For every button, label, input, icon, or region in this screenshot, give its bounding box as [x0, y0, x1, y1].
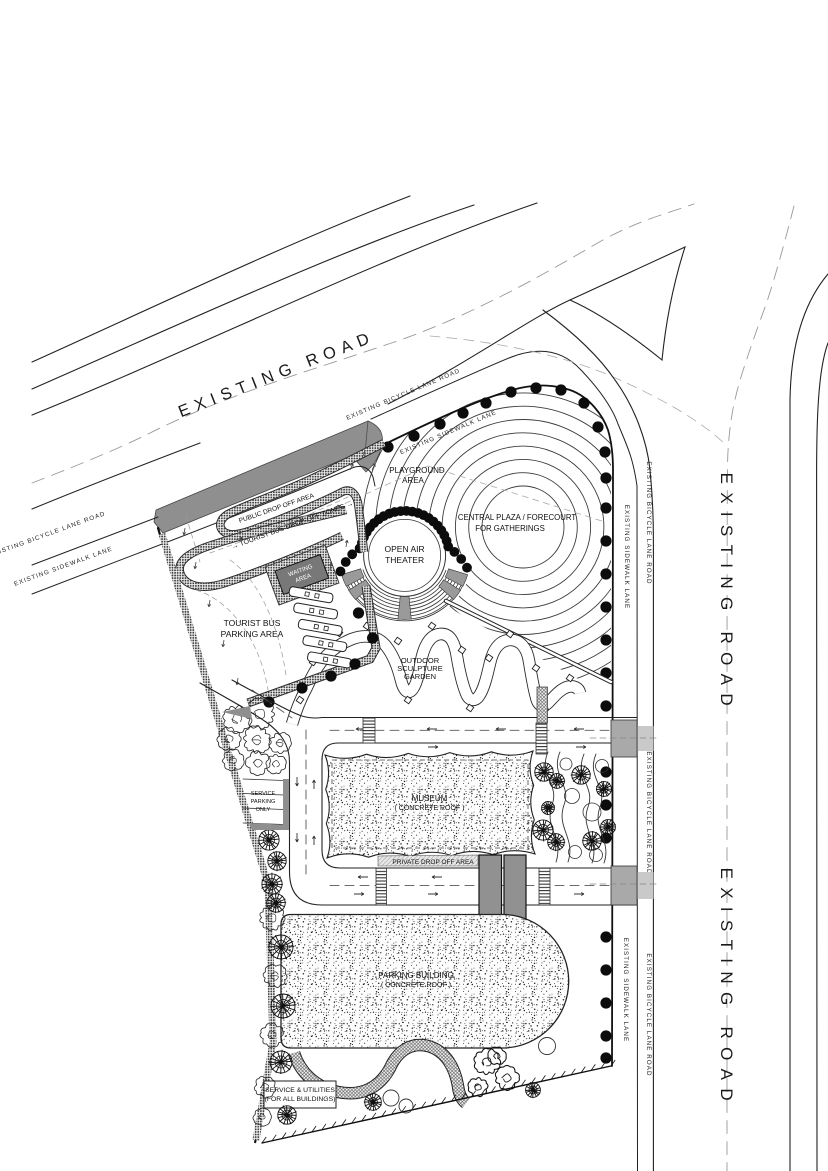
- svg-text:PRIVATE DROP OFF AREA: PRIVATE DROP OFF AREA: [392, 859, 474, 866]
- svg-text:PARKING: PARKING: [251, 799, 276, 805]
- svg-text:EXISTING BICYCLE LANE ROAD: EXISTING BICYCLE LANE ROAD: [645, 751, 652, 874]
- svg-text:AREA: AREA: [402, 476, 424, 485]
- svg-text:( CONCRETE ROOF ): ( CONCRETE ROOF ): [395, 805, 465, 812]
- svg-text:ONLY: ONLY: [256, 807, 271, 813]
- svg-text:PARKING AREA: PARKING AREA: [221, 629, 284, 639]
- svg-text:GARDEN: GARDEN: [404, 672, 436, 681]
- svg-text:E X I S T I N G R O A D: E X I S T I N G R O A D: [717, 473, 736, 708]
- svg-text:FOR GATHERINGS: FOR GATHERINGS: [475, 524, 545, 533]
- svg-text:TOURIST BUS: TOURIST BUS: [224, 618, 281, 628]
- svg-text:EXISTING SIDEWALK LANE: EXISTING SIDEWALK LANE: [623, 505, 630, 609]
- svg-text:EXISTING BICYCLE LANE ROAD: EXISTING BICYCLE LANE ROAD: [645, 953, 652, 1076]
- svg-text:SERVICE: SERVICE: [251, 791, 276, 797]
- svg-text:THEATER: THEATER: [385, 555, 424, 565]
- svg-text:CENTRAL PLAZA / FORECOURT: CENTRAL PLAZA / FORECOURT: [458, 513, 577, 522]
- svg-text:PARKING BUILDING: PARKING BUILDING: [378, 971, 453, 980]
- svg-text:(FOR ALL BUILDINGS): (FOR ALL BUILDINGS): [265, 1096, 336, 1103]
- svg-text:OPEN AIR: OPEN AIR: [385, 544, 425, 554]
- svg-text:EXISTING SIDEWALK LANE: EXISTING SIDEWALK LANE: [622, 938, 629, 1042]
- svg-text:( CONCRETE ROOF ): ( CONCRETE ROOF ): [381, 982, 451, 989]
- svg-text:E X I S T I N G R O A D: E X I S T I N G R O A D: [717, 868, 736, 1103]
- svg-text:MUSEUM: MUSEUM: [412, 794, 448, 803]
- svg-text:EXISTING BICYCLE LANE ROAD: EXISTING BICYCLE LANE ROAD: [645, 461, 652, 584]
- svg-text:PLAYGROUND: PLAYGROUND: [389, 466, 445, 475]
